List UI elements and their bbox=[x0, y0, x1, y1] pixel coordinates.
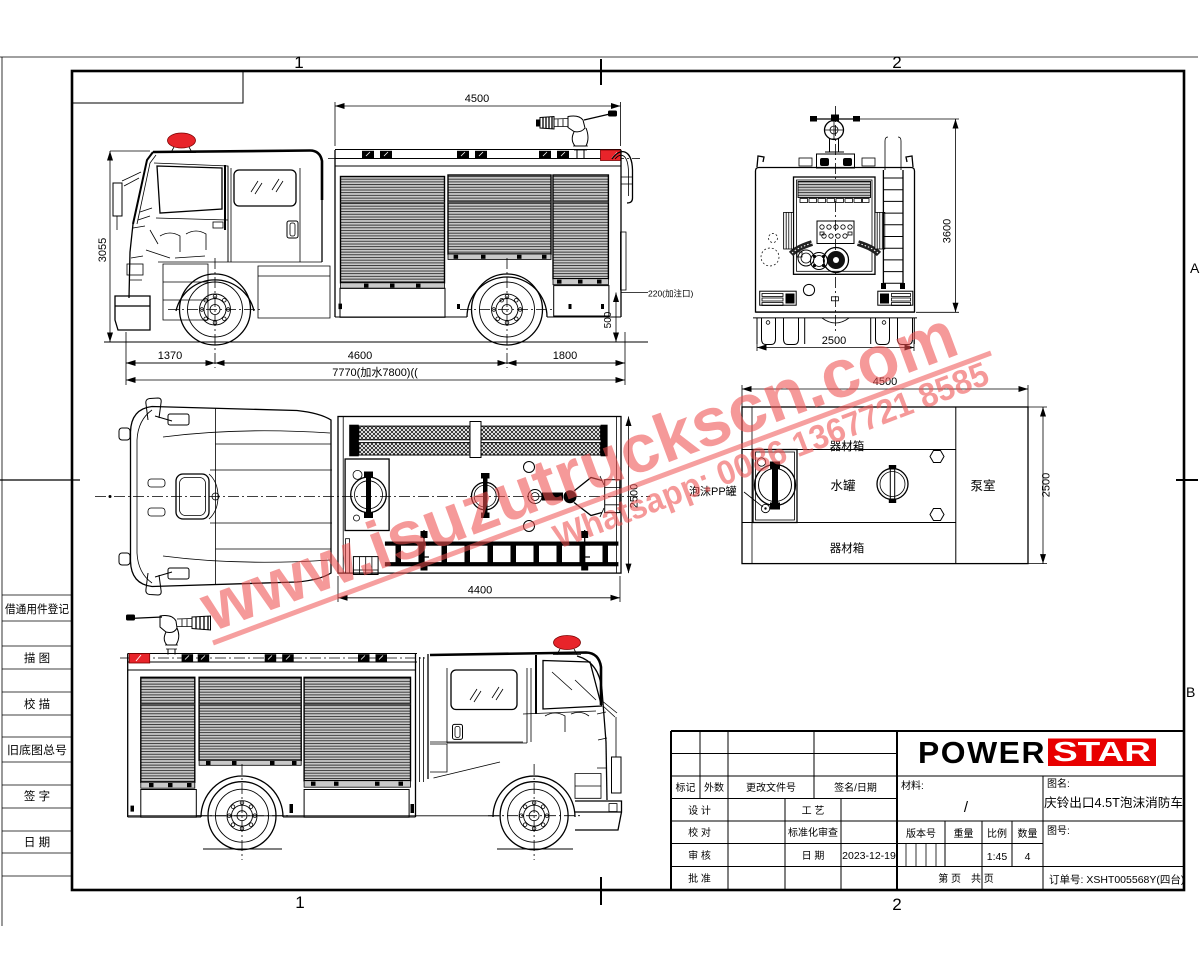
svg-text:A: A bbox=[1190, 260, 1200, 276]
svg-text:B: B bbox=[1186, 684, 1195, 700]
svg-text:标准化审查: 标准化审查 bbox=[788, 826, 838, 839]
svg-text:外数: 外数 bbox=[704, 781, 724, 794]
svg-text:重量: 重量 bbox=[954, 827, 974, 840]
svg-text:1800: 1800 bbox=[553, 350, 577, 362]
svg-text:4400: 4400 bbox=[468, 585, 492, 597]
svg-text:泵室: 泵室 bbox=[970, 478, 995, 493]
svg-text:第 页 共 页: 第 页 共 页 bbox=[938, 872, 994, 885]
svg-text:庆铃出口4.5T泡沫消防车: 庆铃出口4.5T泡沫消防车 bbox=[1044, 795, 1183, 810]
svg-text:更改文件号: 更改文件号 bbox=[746, 781, 796, 794]
svg-text:3055: 3055 bbox=[97, 238, 109, 262]
svg-text:数量: 数量 bbox=[1018, 827, 1038, 840]
svg-text:旧底图总号: 旧底图总号 bbox=[7, 743, 67, 757]
svg-text:签 字: 签 字 bbox=[24, 789, 50, 803]
svg-text:描 图: 描 图 bbox=[24, 651, 50, 665]
svg-text:2: 2 bbox=[892, 53, 901, 72]
svg-text:220(加注口): 220(加注口) bbox=[648, 289, 694, 299]
svg-text:2: 2 bbox=[892, 895, 901, 914]
svg-text:标记: 标记 bbox=[676, 782, 696, 794]
svg-text:校 对: 校 对 bbox=[688, 826, 711, 839]
svg-text:1:45: 1:45 bbox=[987, 851, 1008, 863]
svg-text:1: 1 bbox=[294, 53, 303, 72]
svg-text:1: 1 bbox=[295, 893, 304, 912]
svg-text:2500: 2500 bbox=[1041, 473, 1053, 497]
svg-text:审 核: 审 核 bbox=[688, 849, 711, 862]
svg-text:POWER: POWER bbox=[918, 735, 1046, 770]
svg-text:STAR: STAR bbox=[1053, 736, 1151, 767]
svg-text:校 描: 校 描 bbox=[24, 697, 50, 711]
svg-text:3600: 3600 bbox=[942, 219, 954, 243]
svg-text:签名/日期: 签名/日期 bbox=[834, 781, 877, 794]
svg-text:订单号: XSHT005568Y(四台): 订单号: XSHT005568Y(四台) bbox=[1049, 873, 1184, 886]
svg-text:1370: 1370 bbox=[158, 350, 182, 362]
svg-text:比例: 比例 bbox=[987, 827, 1007, 840]
svg-text:4: 4 bbox=[1025, 851, 1031, 863]
svg-text:设 计: 设 计 bbox=[688, 804, 711, 817]
svg-text:500: 500 bbox=[603, 311, 614, 328]
svg-text:日 期: 日 期 bbox=[802, 850, 825, 862]
svg-text:借通用件登记: 借通用件登记 bbox=[5, 602, 69, 616]
svg-text:4600: 4600 bbox=[348, 350, 372, 362]
svg-text:版本号: 版本号 bbox=[906, 827, 936, 840]
svg-text:工 艺: 工 艺 bbox=[802, 805, 825, 817]
svg-text:2023-12-19: 2023-12-19 bbox=[842, 850, 896, 862]
svg-text:器材箱: 器材箱 bbox=[830, 541, 865, 555]
svg-text:水罐: 水罐 bbox=[830, 479, 856, 493]
svg-text:批 准: 批 准 bbox=[688, 872, 711, 885]
svg-text:图名:: 图名: bbox=[1047, 777, 1070, 790]
svg-text:7770(加水7800)((: 7770(加水7800)(( bbox=[332, 366, 418, 379]
svg-text:4500: 4500 bbox=[465, 93, 489, 105]
svg-text:材料:: 材料: bbox=[901, 779, 924, 792]
svg-text:图号:: 图号: bbox=[1047, 825, 1070, 837]
svg-text:日 期: 日 期 bbox=[24, 836, 50, 849]
